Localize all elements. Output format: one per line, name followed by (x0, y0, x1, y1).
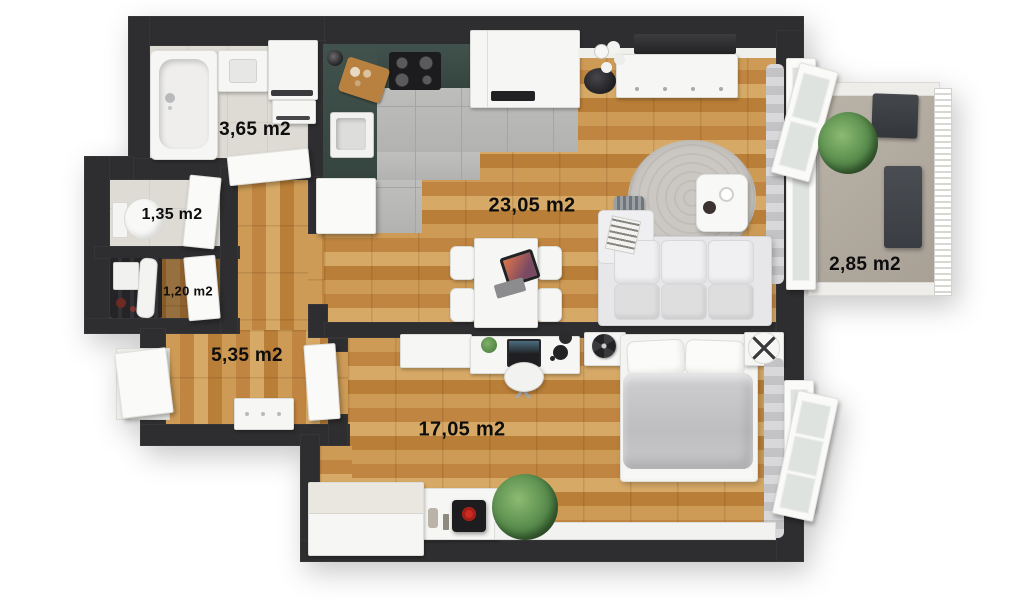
office-chair (502, 362, 544, 402)
floor-lamp-base (584, 68, 616, 94)
wall-wc-left (84, 156, 110, 334)
desk-lamp-icon (553, 345, 568, 360)
wardrobe (308, 482, 424, 556)
glass-pane (779, 472, 816, 513)
balcony-side-table (871, 93, 919, 139)
tv-sideboard (616, 54, 738, 98)
shoe-cabinet (234, 398, 294, 430)
glass-pane (795, 400, 831, 439)
sofa-back-cushion (614, 284, 660, 320)
cabinet-divider (487, 31, 488, 107)
bed (620, 334, 758, 482)
tv (634, 34, 736, 54)
sofa-seat-cushion (661, 240, 707, 284)
sofa-back-cushion (708, 284, 754, 320)
tablet-keyboard (494, 277, 527, 299)
sideboard-knobs (635, 87, 639, 91)
glass-pane (792, 72, 831, 124)
sofa-back-cushion (661, 284, 707, 320)
area-label-bathroom: 3,65 m2 (219, 119, 291, 141)
area-label-living-room: 23,05 m2 (489, 195, 576, 218)
bedroom-plant (492, 474, 558, 540)
area-label-balcony: 2,85 m2 (829, 254, 901, 276)
pillow (684, 339, 745, 377)
cooktop (389, 52, 441, 90)
storage-jar-icon (116, 298, 126, 308)
bedroom-dresser (400, 334, 472, 368)
wall-bathroom-left (128, 16, 150, 166)
area-label-bedroom: 17,05 m2 (419, 419, 506, 442)
dining-chair (450, 288, 476, 322)
kitchen-sink-basin (336, 118, 366, 150)
bathtub-faucet-icon (165, 93, 175, 103)
wardrobe-top-face (309, 483, 423, 514)
dining-table (474, 238, 538, 328)
kitchen-sink (330, 112, 374, 158)
vase-icon (428, 508, 438, 528)
bathtub-basin (159, 59, 209, 149)
entry-door (114, 347, 174, 419)
washbasin-cabinet (218, 50, 268, 92)
balcony-railing (934, 88, 952, 296)
sofa-seat-cushion (708, 240, 754, 284)
bistro-table (884, 166, 922, 248)
pillow (626, 339, 686, 378)
table-fan-icon (592, 334, 616, 358)
floor-lamp-bulb (594, 44, 609, 59)
washbasin-icon (229, 59, 257, 83)
cup-icon (719, 187, 734, 202)
storage-box (113, 262, 139, 290)
floorplan-canvas: 3,65 m2 1,35 m2 1,20 m2 5,35 m2 23,05 m2… (0, 0, 1024, 600)
food-icon (349, 66, 362, 79)
wall-wc-hallway-divider (220, 166, 238, 334)
office-chair-seat (504, 362, 544, 392)
shoe-cabinet-knobs (245, 412, 249, 416)
hallway-floor-corridor (238, 178, 310, 332)
washing-machine (268, 40, 318, 100)
mattress-edge (623, 469, 753, 479)
moka-pot-icon (327, 50, 343, 66)
kitchen-tall-cabinet (470, 30, 580, 108)
decor-tray-icon (748, 332, 780, 364)
area-label-storage: 1,20 m2 (163, 284, 213, 299)
apartment-floor-plan: 3,65 m2 1,35 m2 1,20 m2 5,35 m2 23,05 m2… (0, 0, 1024, 600)
duvet (623, 373, 753, 469)
balcony-plant (818, 112, 878, 174)
kitchen-counter-sink-slot (491, 91, 535, 101)
record-player-disc (462, 507, 476, 521)
area-label-wc: 1,35 m2 (142, 206, 203, 224)
balcony-ledge-bottom (808, 282, 944, 296)
glass-pane (787, 435, 824, 476)
glass-pane (779, 121, 818, 173)
bathtub (150, 50, 218, 160)
desk-speaker-icon (559, 331, 572, 344)
record-player (452, 500, 486, 532)
living-room-door (316, 178, 376, 234)
desk-plant-icon (481, 337, 497, 353)
dining-chair (536, 288, 562, 322)
washing-machine-panel (271, 90, 313, 96)
area-label-hallway: 5,35 m2 (211, 345, 283, 367)
bedroom-door (303, 343, 340, 421)
sofa (598, 210, 770, 324)
floor-lamp (582, 38, 626, 96)
dining-chair (450, 246, 476, 280)
glass-pane (792, 175, 810, 281)
